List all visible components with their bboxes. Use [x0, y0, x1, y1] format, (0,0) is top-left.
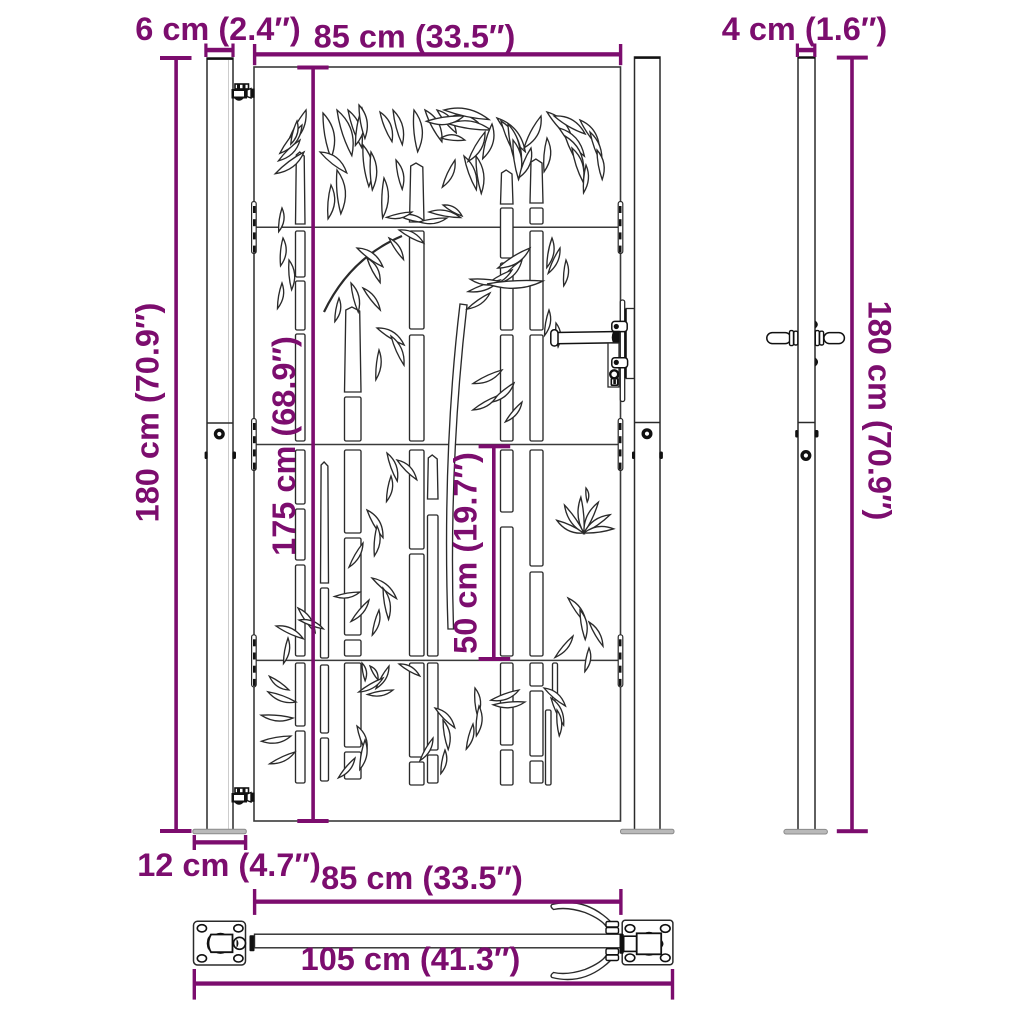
svg-text:85 cm (33.5″): 85 cm (33.5″)	[321, 860, 523, 896]
svg-text:180 cm (70.9″): 180 cm (70.9″)	[862, 301, 898, 521]
svg-text:6 cm (2.4″): 6 cm (2.4″)	[135, 11, 301, 47]
svg-text:12 cm (4.7″): 12 cm (4.7″)	[137, 847, 321, 883]
svg-text:105 cm (41.3″): 105 cm (41.3″)	[301, 941, 521, 977]
svg-text:50 cm (19.7″): 50 cm (19.7″)	[448, 452, 484, 654]
svg-text:85 cm (33.5″): 85 cm (33.5″)	[314, 19, 516, 55]
svg-text:180 cm (70.9″): 180 cm (70.9″)	[130, 303, 166, 523]
svg-text:175 cm (68.9″): 175 cm (68.9″)	[266, 336, 302, 556]
svg-text:4 cm (1.6″): 4 cm (1.6″)	[722, 11, 888, 47]
